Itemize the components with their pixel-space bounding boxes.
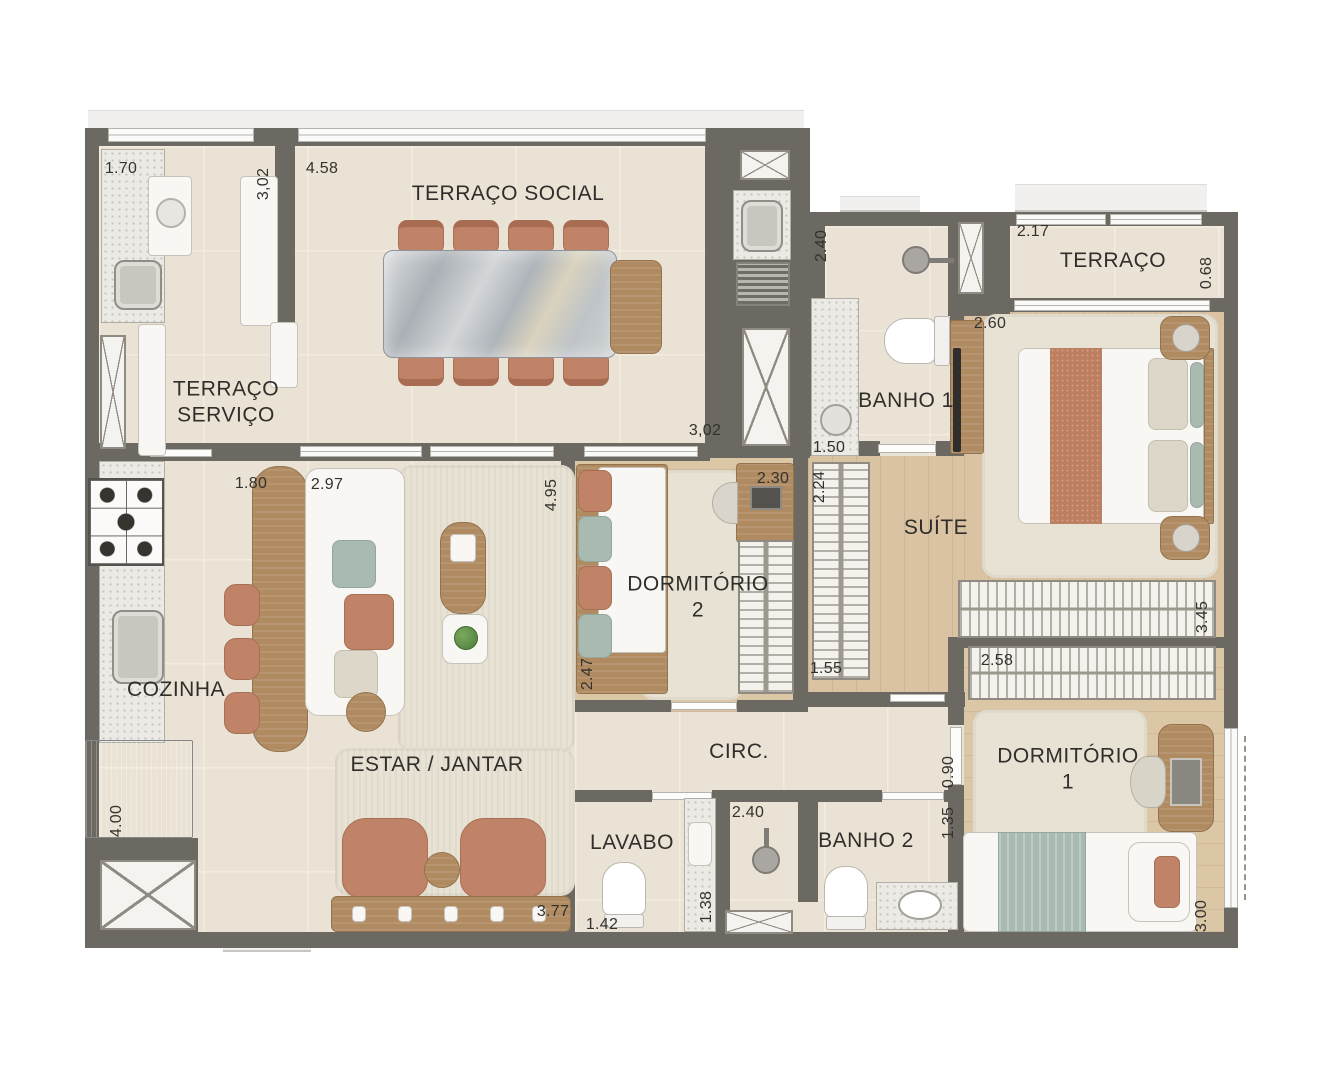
room-label-dormitorio-2: DORMITÓRIO 2 <box>627 571 769 622</box>
armchair <box>460 818 546 898</box>
wall-segment <box>944 790 962 802</box>
shaft-servico <box>100 335 126 449</box>
banho1-shower-arm <box>928 258 954 263</box>
room-label-cozinha: COZINHA <box>127 677 225 703</box>
dorm1-cushion <box>1154 856 1180 908</box>
dorm2-pillow <box>578 614 612 658</box>
balcony-slab-terraco <box>1015 184 1207 212</box>
armchair <box>342 818 428 898</box>
door-banho1 <box>878 444 936 453</box>
dimension-label-14: 3.45 <box>1193 601 1213 633</box>
ottoman <box>346 692 386 732</box>
door-dorm2 <box>671 702 737 710</box>
suite-bed-runner <box>1050 348 1102 524</box>
plant-icon <box>454 626 478 650</box>
dimension-label-20: 2.40 <box>732 803 764 823</box>
room-label-dormitorio-1: DORMITÓRIO 1 <box>997 743 1139 794</box>
dimension-label-22: 1.38 <box>697 891 717 923</box>
shaft-banho2 <box>725 910 793 934</box>
window-terraco-2 <box>1110 214 1202 225</box>
ledge-banho1 <box>840 196 920 212</box>
door-banho2 <box>882 792 944 800</box>
side-table <box>424 852 460 888</box>
room-label-terraco-social: TERRAÇO SOCIAL <box>412 181 605 207</box>
window-estar-2 <box>430 446 554 457</box>
window-dorm1-dashline <box>1244 736 1246 900</box>
room-label-lavabo: LAVABO <box>590 830 674 856</box>
dorm2-monitor-icon <box>750 486 782 510</box>
dimension-label-6: 0.68 <box>1197 257 1217 289</box>
bar-stool <box>224 584 260 626</box>
lamp-icon <box>1172 324 1200 352</box>
kitchen-sink <box>112 610 164 684</box>
banho2-shower-arm <box>764 828 769 848</box>
wall-segment <box>575 790 652 802</box>
shaft-banho1 <box>958 222 984 294</box>
banho2-toilet-tank <box>826 916 866 930</box>
coffee-table-tray <box>450 534 476 562</box>
dimension-label-5: 2.17 <box>1017 222 1049 242</box>
window-dorm1 <box>1224 728 1238 908</box>
candle-icon <box>490 906 504 922</box>
dimension-label-13: 2.47 <box>578 658 598 690</box>
suite-wardrobe <box>958 580 1216 638</box>
window-suite <box>1014 300 1210 311</box>
lavabo-sink <box>688 822 712 866</box>
stove-cooktop <box>88 478 164 566</box>
suite-pillow <box>1190 362 1204 428</box>
dimension-label-2: 4.58 <box>306 159 338 179</box>
dining-bench <box>610 260 662 354</box>
floor-plan: TERRAÇO SOCIALTERRAÇO SERVIÇOTERRAÇOBANH… <box>0 0 1330 1080</box>
laundry-cabinet <box>138 324 166 456</box>
refrigerator <box>85 740 193 838</box>
room-label-banho-2: BANHO 2 <box>818 828 914 854</box>
banho2-toilet <box>824 866 868 918</box>
dorm1-laptop-icon <box>1170 758 1202 806</box>
candle-icon <box>352 906 366 922</box>
wall-segment <box>85 932 1238 948</box>
dimension-label-19: 1.35 <box>939 807 959 839</box>
dining-chair <box>563 220 609 254</box>
kitchen-island <box>252 466 308 752</box>
suite-tv-icon <box>953 348 961 452</box>
dimension-label-11: 1.55 <box>810 659 842 679</box>
suite-pillow <box>1148 358 1188 430</box>
dimension-label-3: 2.40 <box>812 230 832 262</box>
sofa-pillow <box>344 594 394 650</box>
shaft-top <box>740 150 790 180</box>
dining-table <box>383 250 617 358</box>
dimension-label-1: 3,02 <box>254 168 274 200</box>
gourmet-sink <box>741 200 783 252</box>
door-suite <box>890 694 945 702</box>
dorm1-blanket <box>998 832 1086 932</box>
dimension-label-18: 0.90 <box>939 756 959 788</box>
window-servico <box>108 128 254 142</box>
room-label-estar-jantar: ESTAR / JANTAR <box>350 752 523 778</box>
dimension-label-16: 1.80 <box>235 474 267 494</box>
banho1-toilet <box>884 318 936 364</box>
dining-chair <box>453 220 499 254</box>
banho2-sink <box>898 890 942 920</box>
candle-icon <box>398 906 412 922</box>
sofa-pillow <box>334 650 378 698</box>
dimension-label-24: 4.00 <box>107 805 127 837</box>
suite-pillow <box>1148 440 1188 512</box>
dorm2-pillow <box>578 516 612 562</box>
window-dorm2 <box>584 446 698 457</box>
dining-chair <box>398 220 444 254</box>
banho1-toilet-tank <box>934 316 950 366</box>
wall-segment <box>798 802 818 902</box>
room-label-terraco: TERRAÇO <box>1060 248 1166 274</box>
dimension-label-21: 1.42 <box>586 915 618 935</box>
room-label-suite: SUÍTE <box>904 515 968 541</box>
bar-stool <box>224 638 260 680</box>
wall-segment <box>793 443 808 712</box>
sofa-pillow <box>332 540 376 588</box>
wall-segment <box>561 700 671 712</box>
dimension-label-8: 3,02 <box>689 421 721 441</box>
washer-door-icon <box>156 198 186 228</box>
banho1-sink <box>820 404 852 436</box>
wall-segment <box>712 790 882 802</box>
dimension-label-7: 2.60 <box>974 314 1006 334</box>
room-label-banho-1: BANHO 1 <box>858 388 954 414</box>
window-terraco-social <box>298 128 706 142</box>
banho2-shower-icon <box>752 846 780 874</box>
room-label-terraco-servico: TERRAÇO SERVIÇO <box>173 376 279 427</box>
dimension-label-17: 2.97 <box>311 475 343 495</box>
wall-segment <box>948 637 964 725</box>
dimension-label-9: 2.30 <box>757 469 789 489</box>
dining-chair <box>508 220 554 254</box>
dimension-label-25: 3.00 <box>1192 900 1212 932</box>
balcony-slab-top <box>88 110 804 130</box>
dimension-label-15: 2.58 <box>981 651 1013 671</box>
shaft-bottom-left <box>100 860 196 930</box>
dimension-label-12: 4.95 <box>542 479 562 511</box>
bar-stool <box>224 692 260 734</box>
banho1-shower-icon <box>902 246 930 274</box>
laundry-sink <box>114 260 162 310</box>
shaft-tall <box>742 328 790 446</box>
dimension-label-10: 2.24 <box>810 471 830 503</box>
dimension-label-4: 1.50 <box>813 438 845 458</box>
dimension-label-0: 1.70 <box>105 159 137 179</box>
suite-headboard <box>1204 348 1214 524</box>
dimension-label-23: 3.77 <box>537 902 569 922</box>
room-label-circ: CIRC. <box>709 739 769 765</box>
barbecue-grill <box>736 262 790 306</box>
lamp-icon <box>1172 524 1200 552</box>
window-estar-1 <box>300 446 422 457</box>
candle-icon <box>444 906 458 922</box>
dorm2-pillow <box>578 470 612 512</box>
dorm2-pillow <box>578 566 612 610</box>
suite-pillow <box>1190 442 1204 508</box>
lavabo-toilet <box>602 862 646 916</box>
